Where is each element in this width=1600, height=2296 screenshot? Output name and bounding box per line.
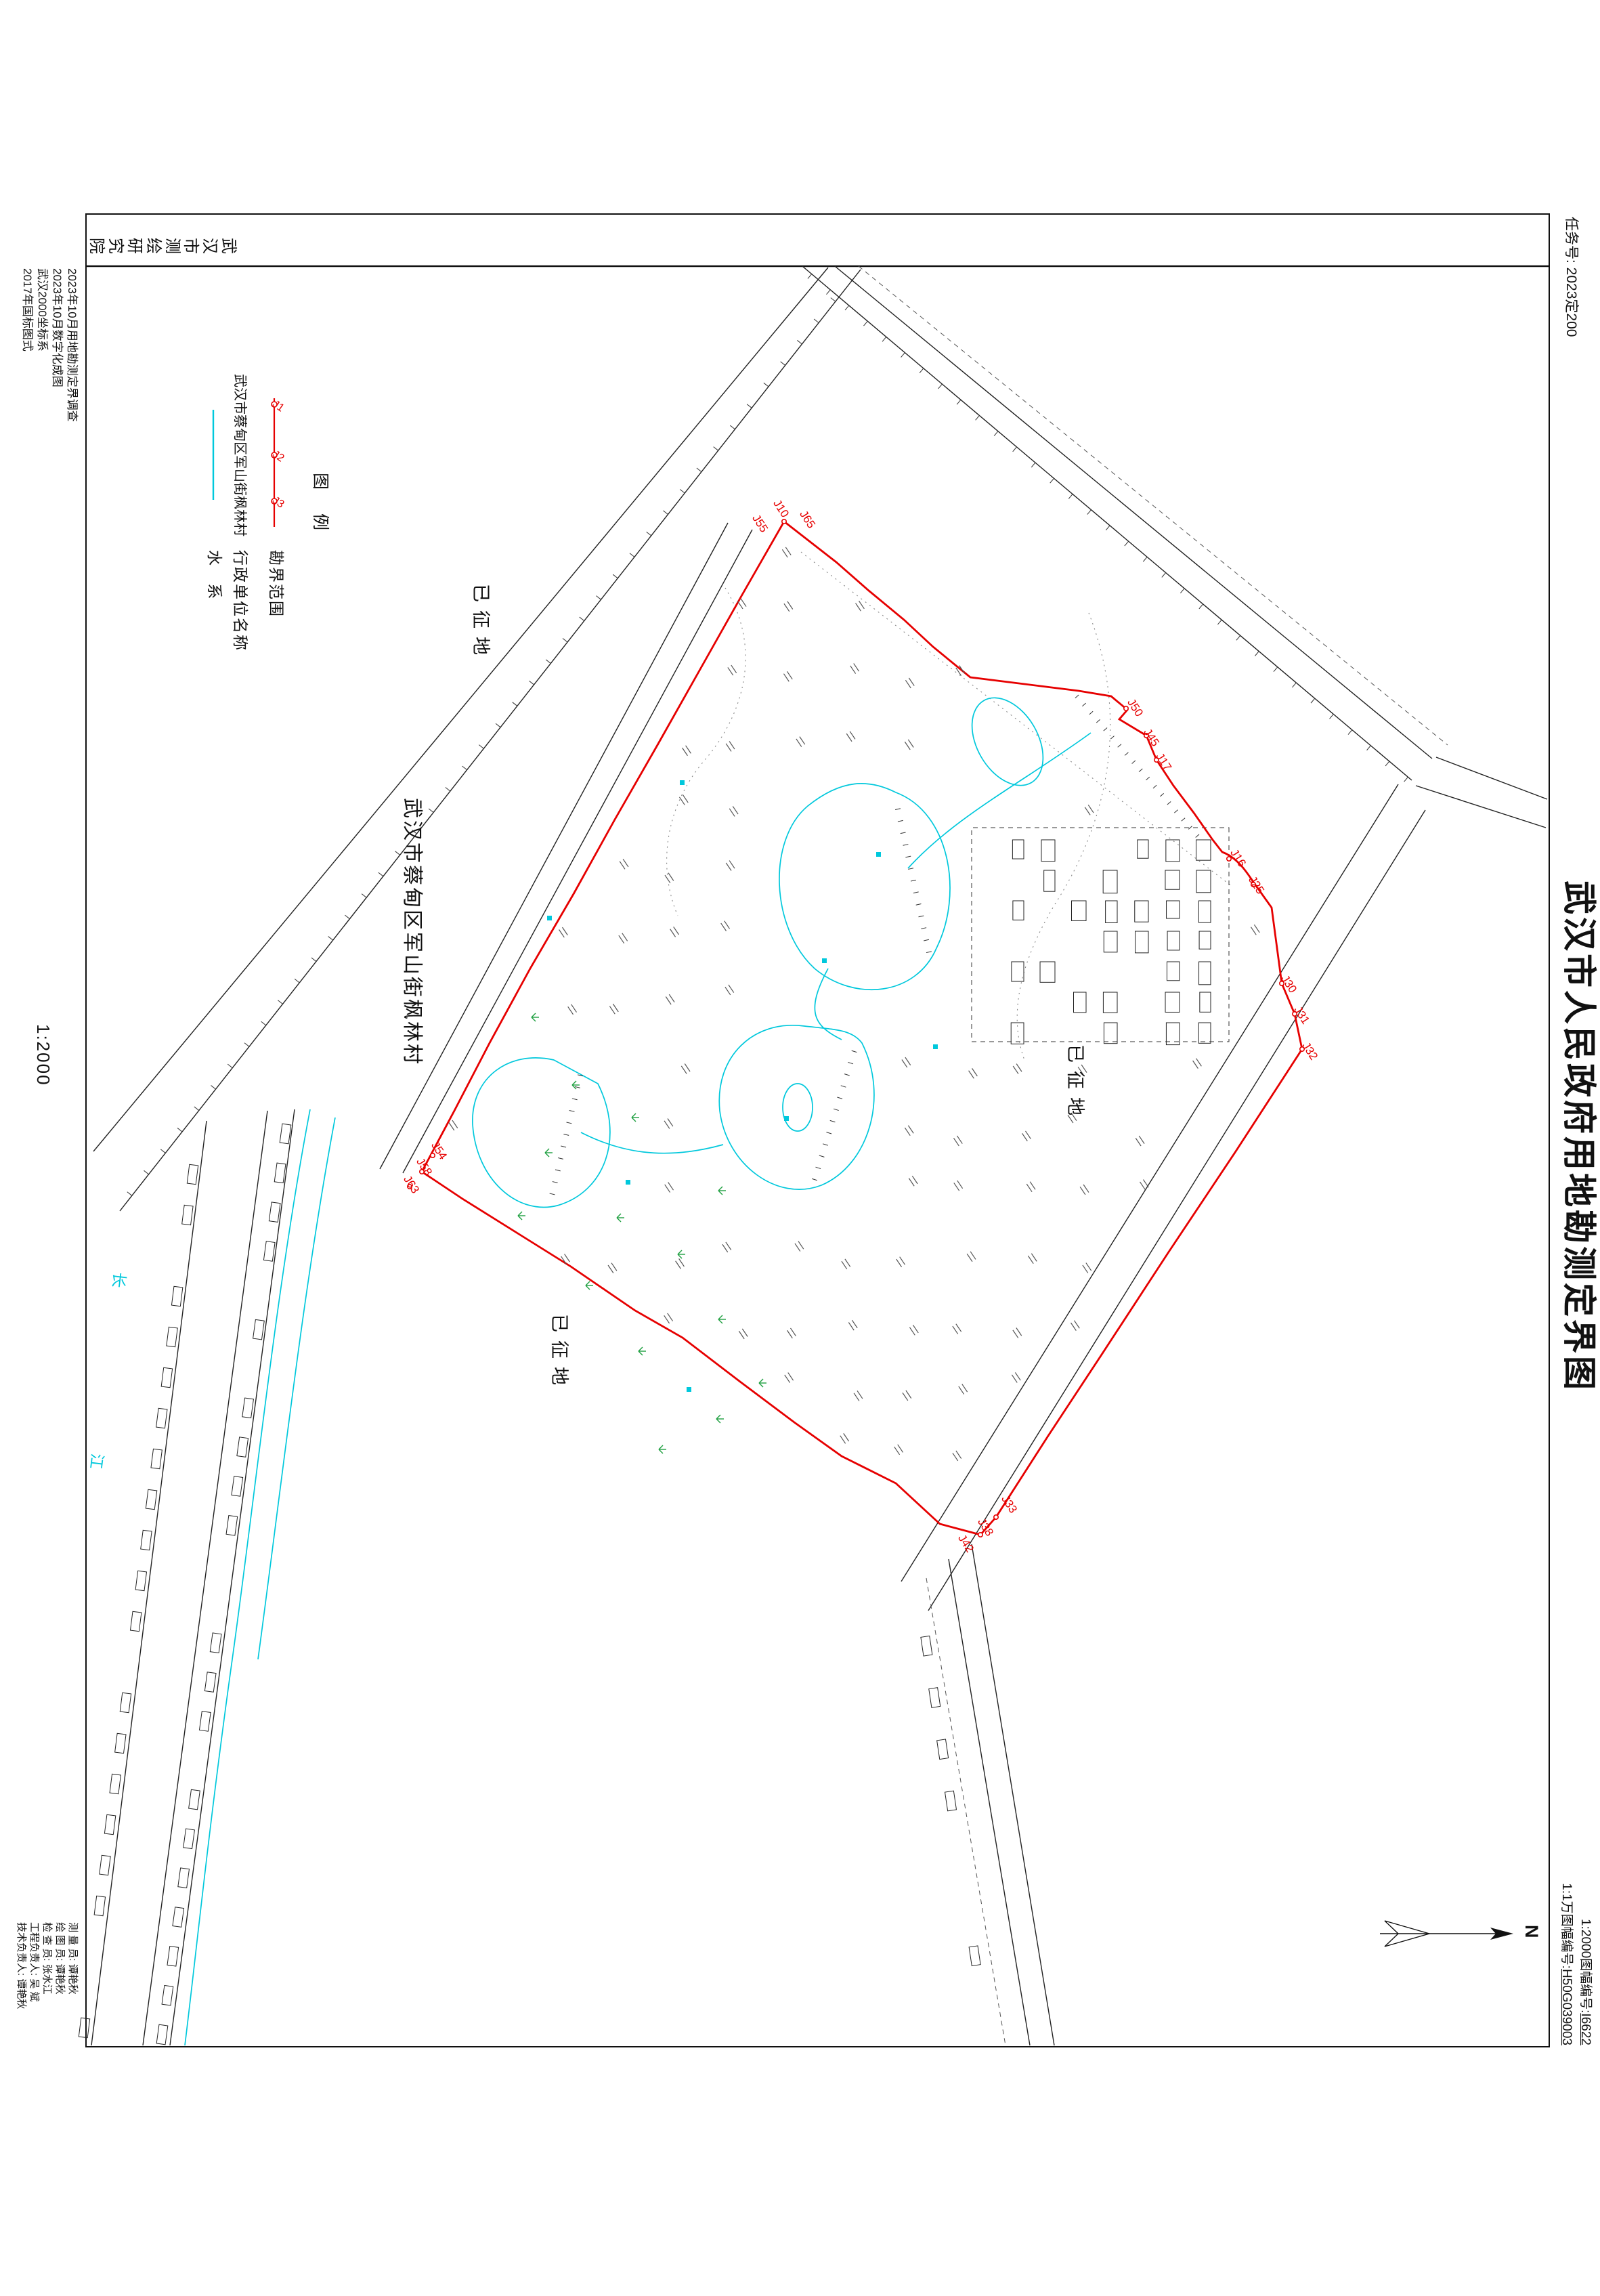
sheet-number-code: I6622	[1578, 2013, 1593, 2045]
north-label: N	[1522, 1925, 1540, 1938]
note-line: 2017年国标图式	[22, 268, 33, 352]
stream	[908, 733, 1091, 868]
credit-line: 工程负责人: 吴 斌	[29, 1922, 39, 2002]
survey-map-page: { "page": { "task_no": "任务号: 2023定200", …	[0, 0, 1600, 2296]
pond-island	[783, 1084, 813, 1131]
dotted-lines	[667, 552, 1233, 1060]
sheet-number-10k: 1:1万图幅编号:H50G039003	[1560, 1876, 1573, 2045]
credit-line: 测 量 员: 谭艳秋	[68, 1922, 78, 1995]
page-title: 武汉市人民政府用地勘测定界图	[1562, 880, 1596, 1393]
river	[258, 1118, 335, 1659]
acquired-land-label: 已征地	[471, 584, 490, 663]
legend-boundary-label: 勘界范围	[268, 550, 284, 618]
legend-water-label: 水 系	[207, 550, 222, 605]
institute-name: 武 汉 市 测 绘 研 究 院	[87, 236, 238, 256]
task-number: 任务号: 2023定200	[1564, 217, 1578, 337]
field-symbols	[449, 547, 1259, 1461]
credit-line: 技术负责人: 谭艳秋	[16, 1922, 26, 2009]
outer-frame	[86, 214, 1549, 2047]
river	[185, 1109, 310, 2045]
credit-line: 检 查 员: 张水江	[42, 1922, 52, 1995]
map-linework	[0, 0, 1600, 2296]
scale-label: 1:2000	[35, 1024, 52, 1086]
embankment-ticks	[127, 274, 1408, 1196]
boundary-points	[408, 519, 1304, 1537]
sheet-number-2000: 1:2000图幅编号:I6622	[1579, 1876, 1592, 2045]
acquired-land-label: 已征地	[1066, 1044, 1084, 1124]
sheet-number-label: 1:2000图幅编号:	[1578, 1919, 1593, 2013]
note-line: 武汉2000坐标系	[37, 268, 48, 352]
landscape-sheet: 武汉市人民政府用地勘测定界图 任务号: 2023定200 1:2000图幅编号:…	[0, 0, 1600, 2296]
pond	[473, 1058, 610, 1208]
note-line: 2023年10月数字化成图	[51, 268, 63, 387]
sheet-number-code: H50G039003	[1559, 1969, 1574, 2045]
pond	[719, 1025, 874, 1189]
pond	[957, 685, 1058, 798]
stream	[581, 1132, 723, 1153]
legend-title: 图 例	[311, 473, 328, 540]
sheet-number-label: 1:1万图幅编号:	[1559, 1883, 1574, 1969]
credit-line: 绘 图 员: 谭艳秋	[55, 1922, 65, 1995]
village-dashed-outline	[972, 828, 1229, 1042]
buildings	[79, 840, 1211, 2045]
note-line: 2023年10月用地勘测定界调查	[66, 268, 78, 422]
village-label: 武汉市蔡甸区军山街枫林村	[402, 798, 422, 1066]
pond-markers	[547, 780, 938, 1392]
legend-admin-sample: 武汉市蔡甸区军山街枫林村	[233, 374, 246, 536]
acquired-land-label: 已征地	[550, 1314, 568, 1393]
pond	[779, 784, 950, 990]
water-features	[185, 685, 1091, 2045]
legend-admin-label: 行政单位名称	[232, 550, 248, 652]
north-arrow	[1380, 1921, 1513, 1947]
road-edges-dashed	[859, 266, 1448, 2045]
